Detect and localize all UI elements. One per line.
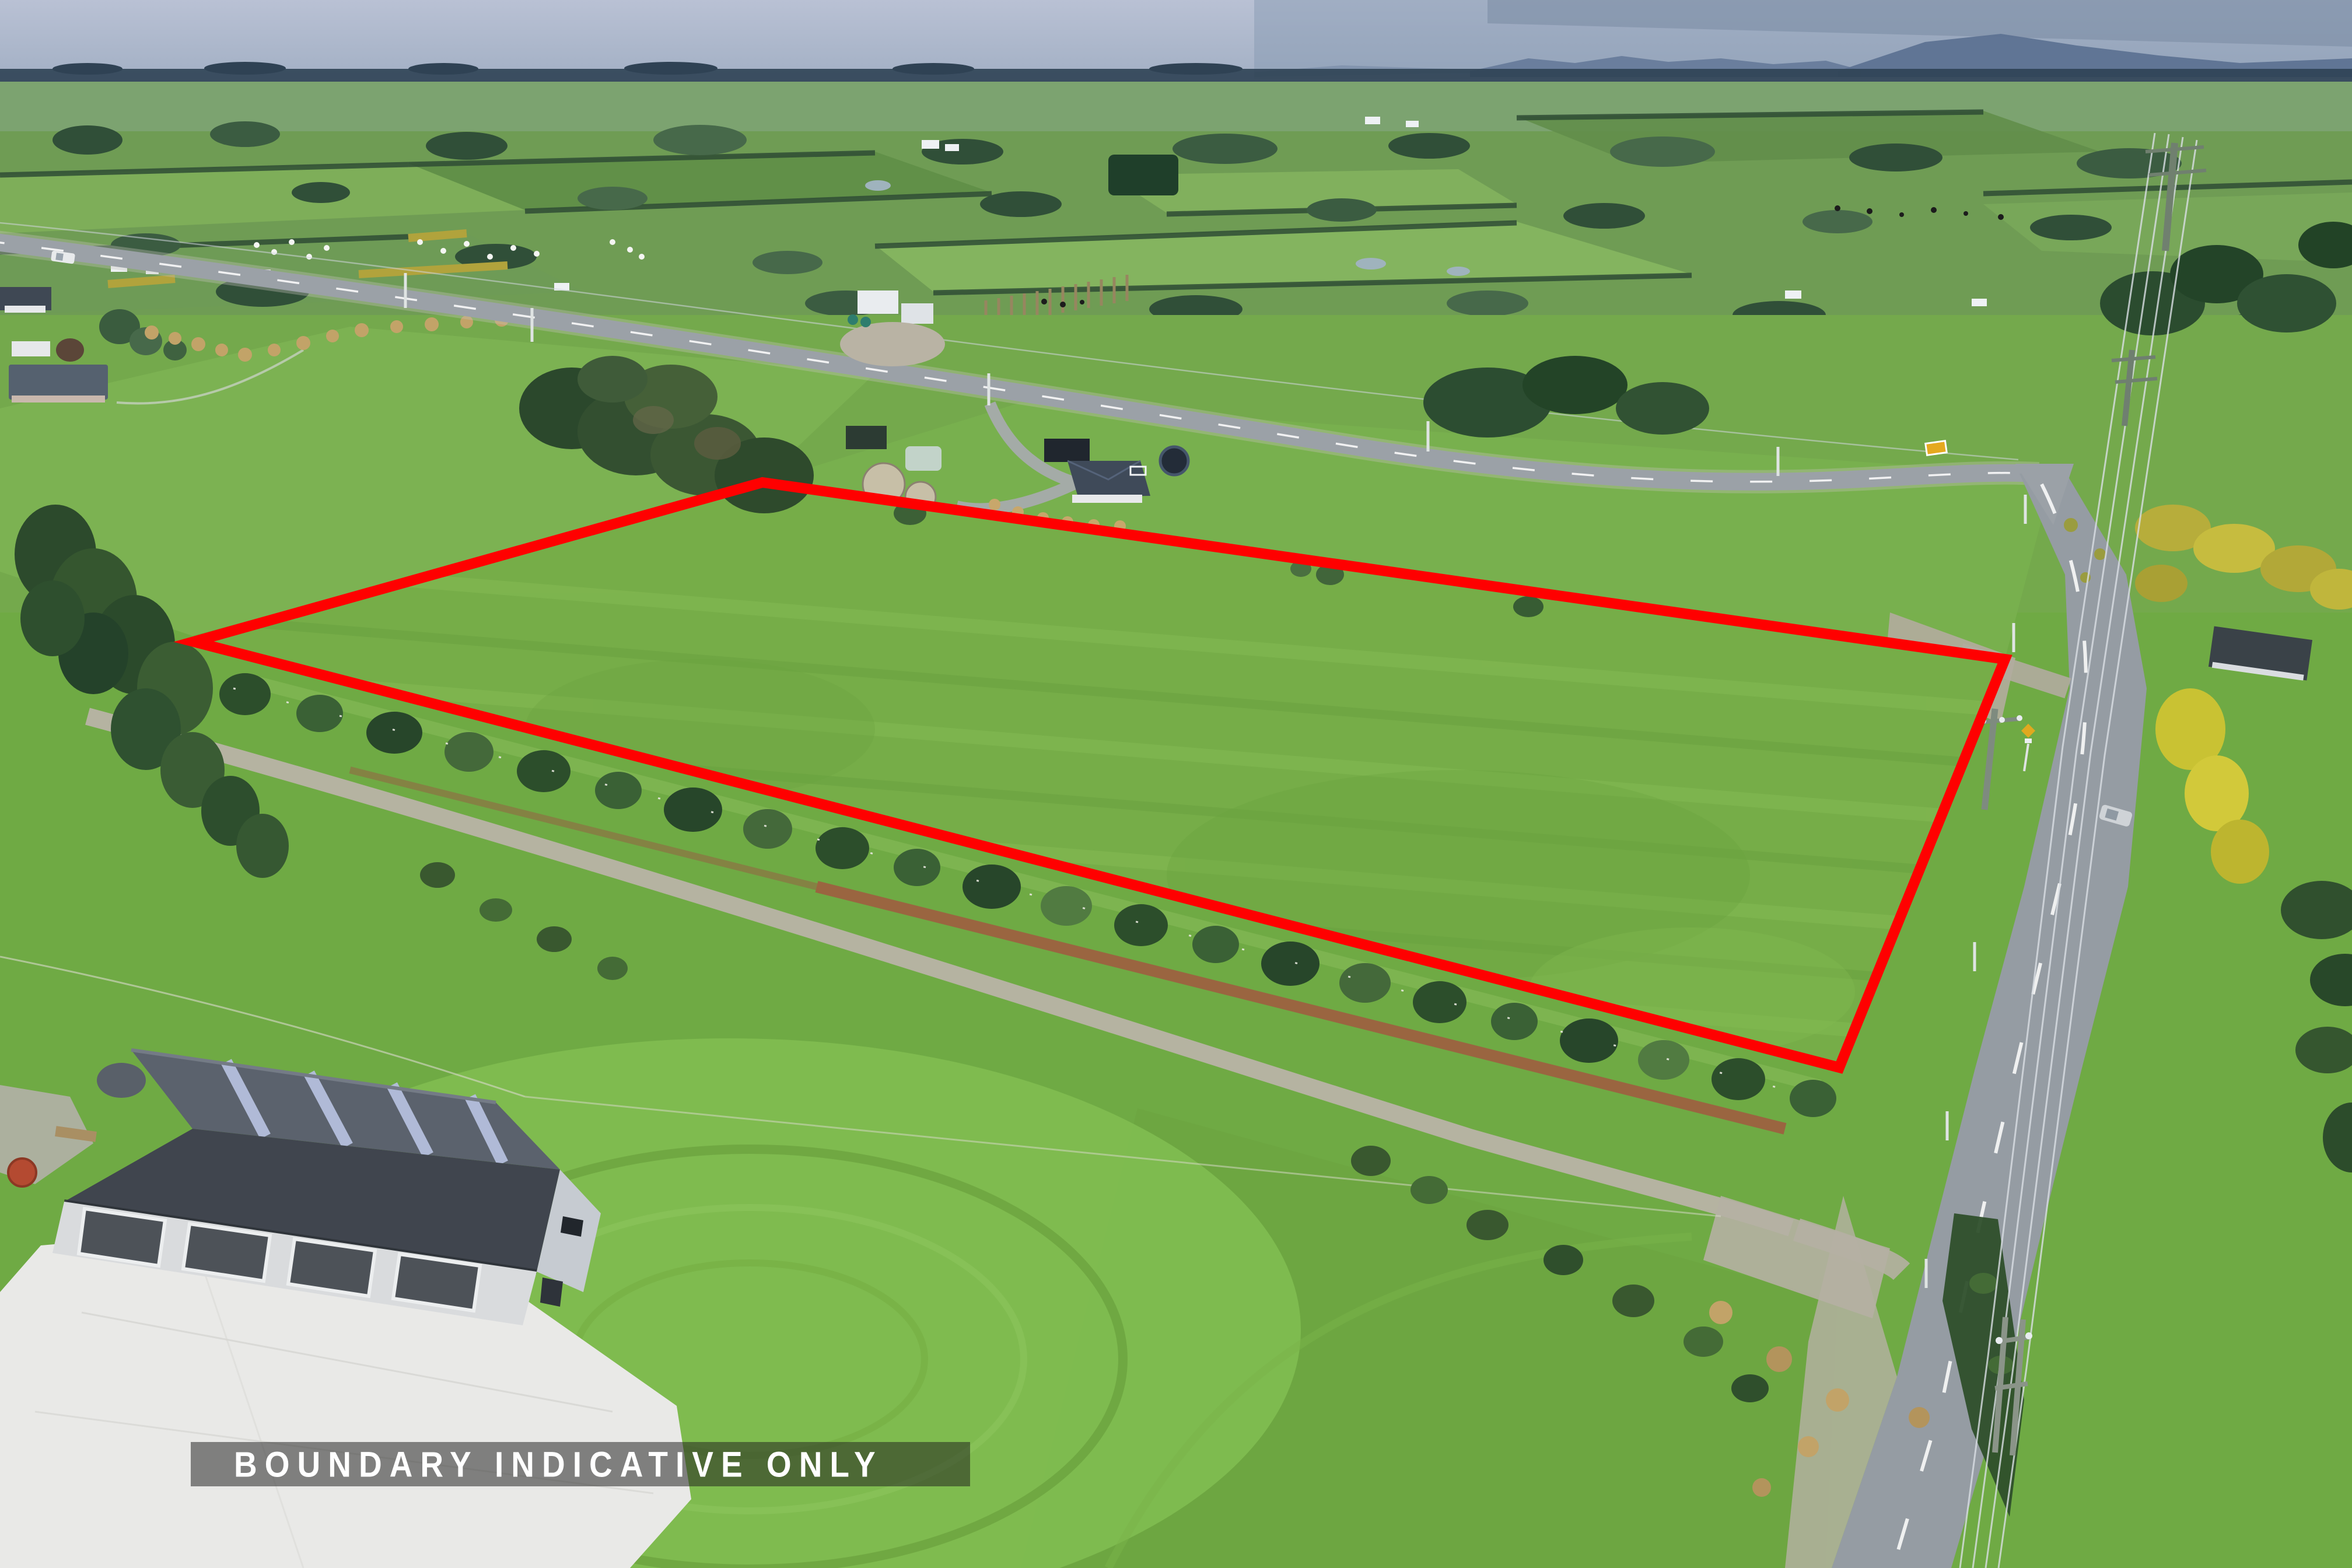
disclaimer-banner: BOUNDARY INDICATIVE ONLY bbox=[191, 1442, 970, 1486]
white-shed bbox=[12, 341, 50, 356]
disclaimer-label: BOUNDARY INDICATIVE ONLY bbox=[234, 1443, 883, 1485]
trampoline bbox=[1160, 447, 1188, 475]
red-barrel bbox=[8, 1158, 36, 1186]
aerial-listing-photo: BOUNDARY INDICATIVE ONLY bbox=[0, 0, 2352, 1568]
brick-house-roof bbox=[9, 365, 108, 400]
far-farmland bbox=[0, 82, 2352, 343]
dark-green-shed bbox=[846, 426, 887, 449]
shed-door bbox=[540, 1277, 563, 1307]
glasshouse bbox=[905, 446, 942, 471]
aerial-photo-canvas bbox=[0, 0, 2352, 1568]
tarp bbox=[97, 1063, 146, 1098]
pine-block bbox=[1108, 155, 1178, 195]
black-shed bbox=[1044, 439, 1090, 462]
chevron-sign bbox=[1926, 441, 1947, 456]
